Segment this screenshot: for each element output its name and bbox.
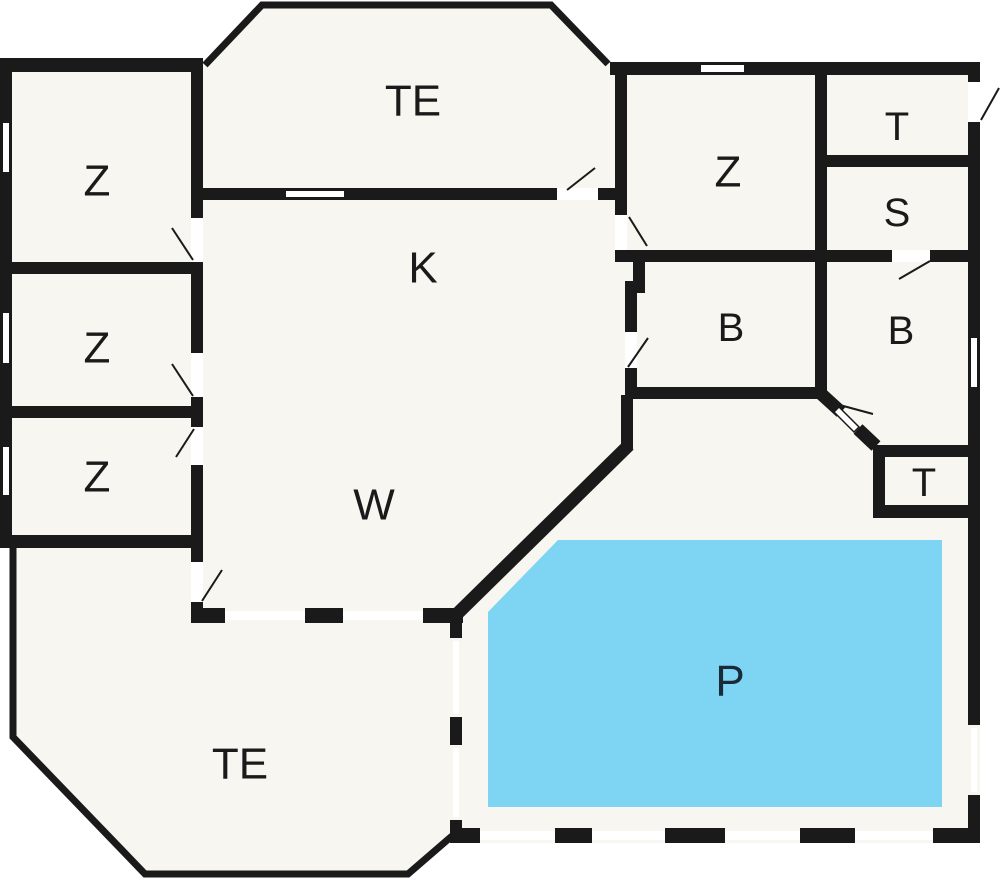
wall-segment [615,62,627,215]
door-opening [191,353,203,397]
wall-segment [450,828,480,843]
room-label-t-bottom: T [912,461,936,505]
window [701,65,744,72]
wall-segment [450,608,462,638]
window [480,831,555,840]
door-opening [615,215,627,250]
wall-segment [0,58,203,72]
window [725,831,800,840]
window [286,191,344,197]
window [225,611,305,620]
floor-plan-canvas: TEZZZKWZTSBBTTEP [0,0,1000,881]
room-label-z2: Z [84,324,111,373]
room-label-b-right: B [888,309,915,353]
window [971,338,977,387]
window [453,748,459,817]
door-opening [191,562,203,602]
room-label-z3: Z [84,453,111,502]
wall-segment [968,795,980,843]
window [592,831,665,840]
window [3,447,9,495]
door-opening [557,188,598,200]
room-label-te-bottom: TE [212,740,268,789]
wall-segment [873,505,980,518]
window [3,123,9,172]
room-label-z-right: Z [715,148,742,197]
wall-segment [555,828,592,843]
room-label-k: K [408,244,437,293]
room-label-pool: P [715,657,744,706]
room-label-te-top: TE [385,77,441,126]
door-opening [191,218,203,262]
floor-plan: TEZZZKWZTSBBTTEP [0,0,1000,881]
wall-segment [203,188,617,200]
wall-segment [12,262,203,274]
wall-segment [12,406,203,418]
window [3,313,9,363]
wall-segment [191,608,225,623]
wall-segment [0,535,203,548]
wall-segment [625,387,823,399]
wall-segment [968,518,980,725]
window [855,831,933,840]
wall-segment [305,608,343,623]
room-label-z1: Z [84,157,111,206]
window [453,641,459,714]
room-label-s: S [884,191,911,235]
wall-segment [873,445,968,457]
wall-segment [968,62,980,518]
wall-segment [815,262,827,399]
wall-segment [450,717,462,745]
room-label-t-top: T [885,105,909,149]
wall-segment [827,155,968,167]
wall-segment [815,62,827,262]
wall-segment [621,395,633,449]
wall-segment [610,62,980,75]
door-swing [981,88,999,120]
door-opening [968,82,980,122]
wall-segment [800,828,855,843]
wall-segment [665,828,725,843]
door-opening [892,250,930,262]
room-label-b-left: B [718,306,745,350]
window [343,611,423,620]
room-label-w: W [353,481,395,530]
window [971,728,977,792]
